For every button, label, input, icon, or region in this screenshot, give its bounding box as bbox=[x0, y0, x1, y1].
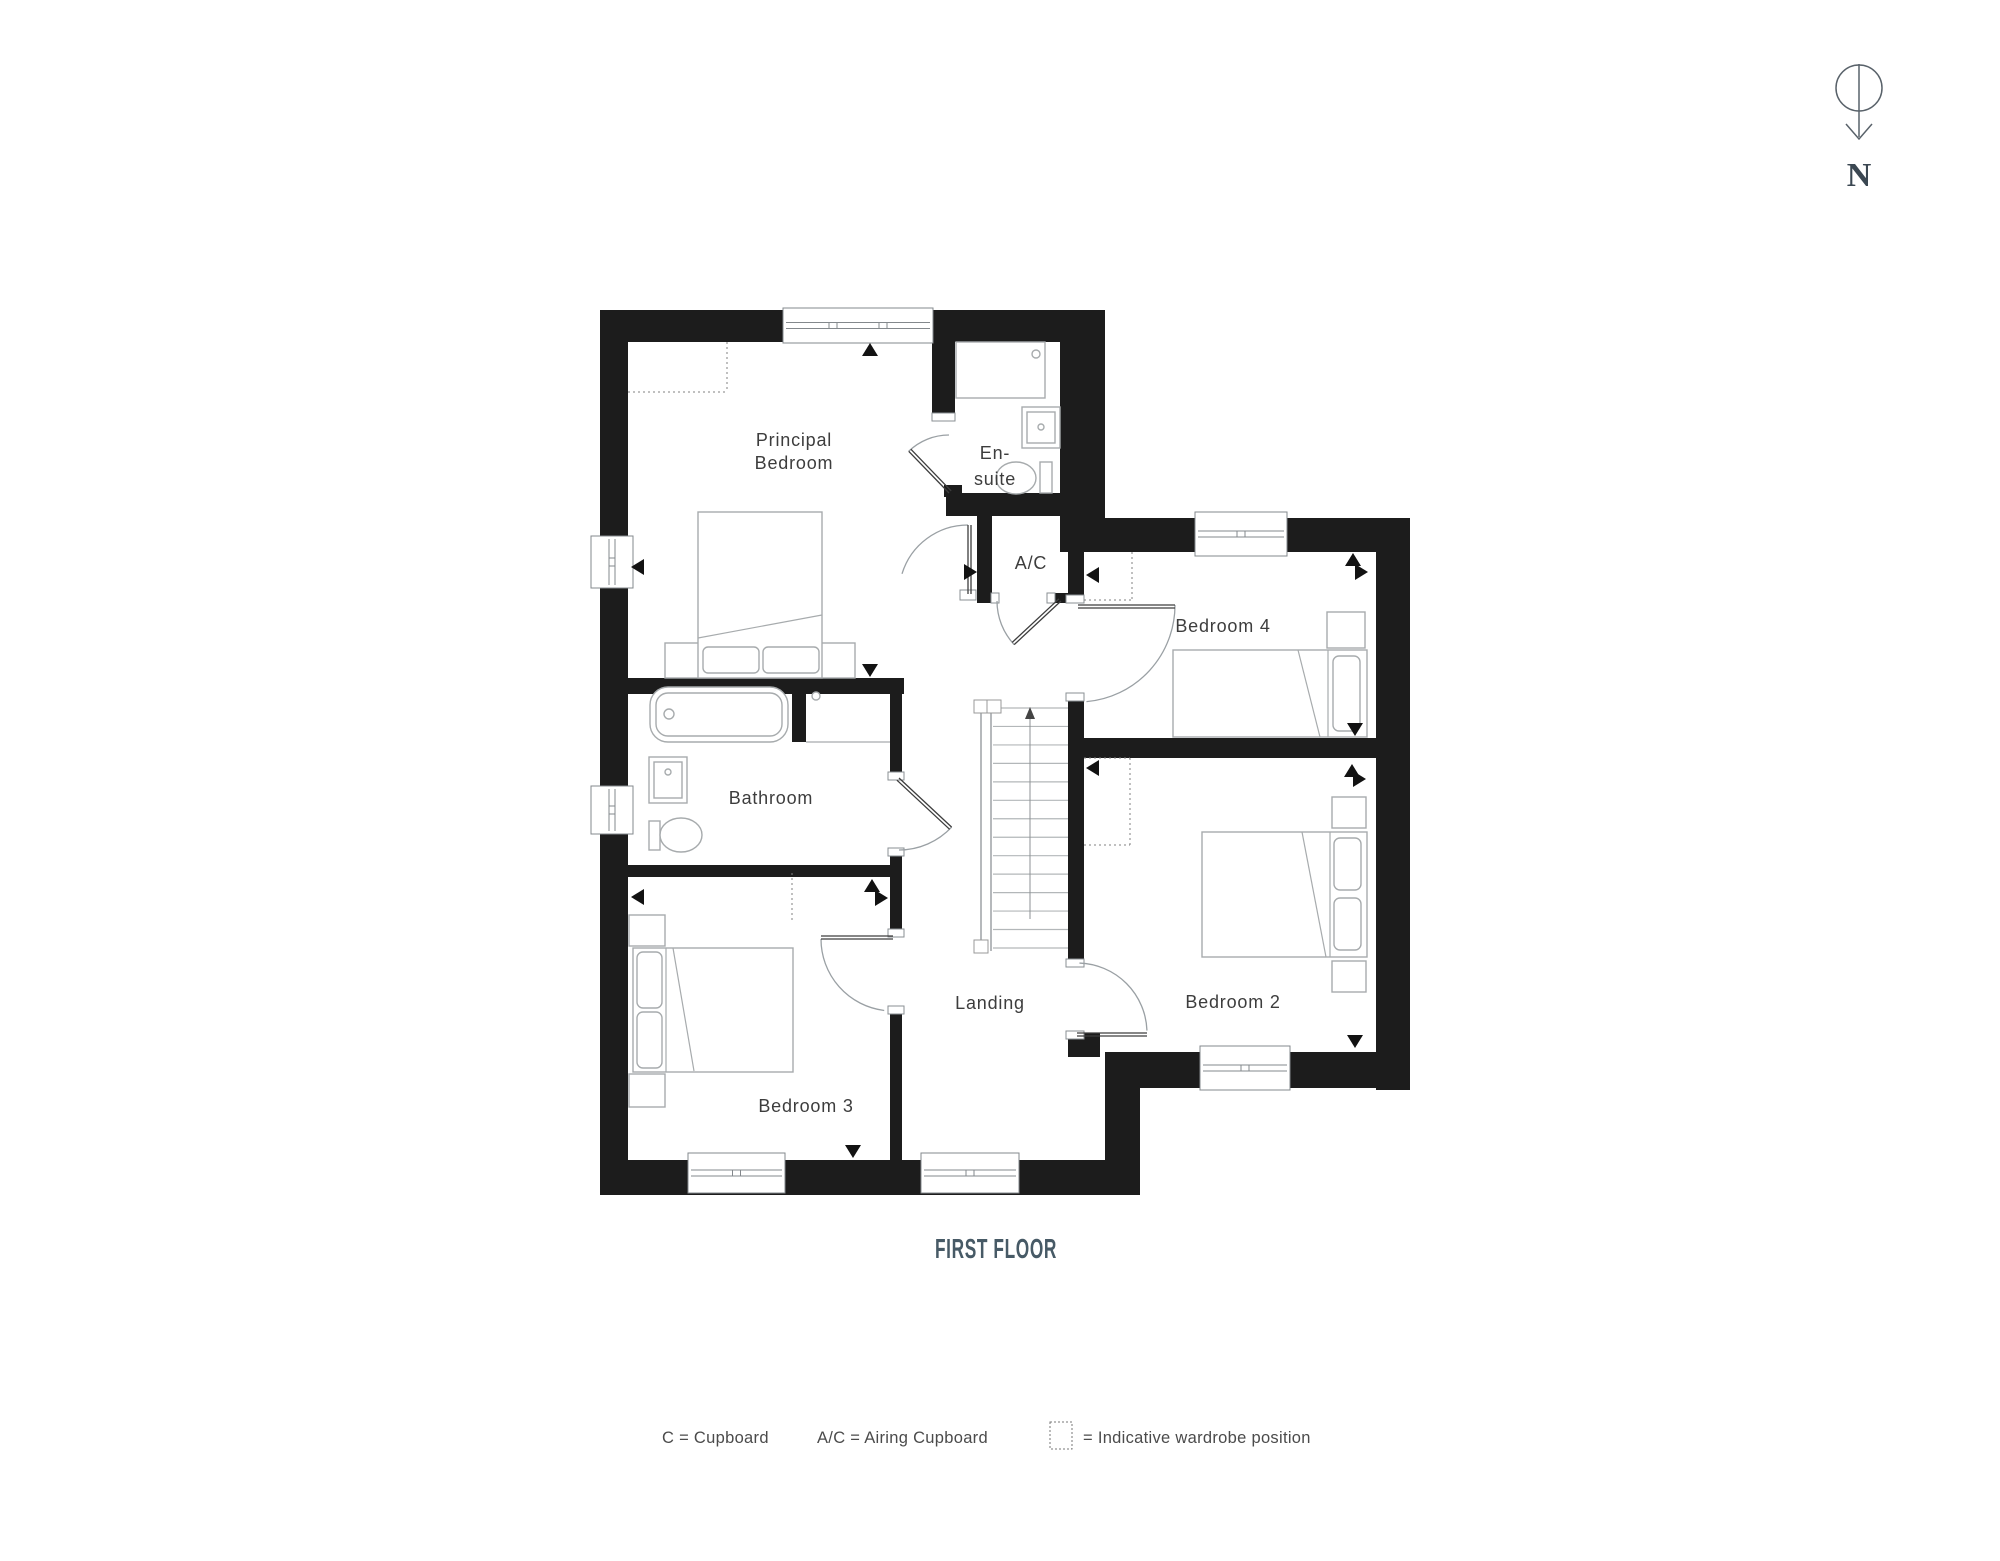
pillow bbox=[1333, 656, 1360, 731]
wall-segment bbox=[600, 1160, 1140, 1195]
door-jamb bbox=[1047, 593, 1055, 603]
bedside-table bbox=[1332, 961, 1366, 992]
bath-tap bbox=[664, 709, 674, 719]
wall-segment bbox=[932, 340, 955, 421]
wall-segment bbox=[792, 680, 806, 742]
newel-post bbox=[974, 700, 988, 713]
door-jamb bbox=[1066, 1031, 1084, 1039]
bedside-table bbox=[1332, 797, 1366, 828]
window bbox=[591, 786, 633, 834]
background bbox=[0, 0, 2000, 1561]
wall-segment bbox=[1376, 518, 1410, 1090]
landing-label: Landing bbox=[955, 993, 1025, 1013]
legend-cupboard: C = Cupboard bbox=[662, 1429, 769, 1447]
window-frame bbox=[1200, 1046, 1290, 1090]
legend-wardrobe-swatch bbox=[1050, 1422, 1072, 1449]
shower bbox=[956, 342, 1045, 398]
wall-segment bbox=[600, 310, 628, 1195]
bedroom4-label: Bedroom 4 bbox=[1175, 616, 1270, 636]
window bbox=[783, 308, 933, 343]
floorplan-canvas: Principal Bedroom En- suite A/C Bedroom … bbox=[0, 0, 2000, 1561]
wall-segment bbox=[946, 493, 1062, 516]
door-jamb bbox=[888, 848, 904, 856]
door-jamb bbox=[1066, 595, 1084, 603]
toilet-cistern bbox=[649, 821, 660, 850]
fixture-dot bbox=[812, 692, 820, 700]
bathroom-label: Bathroom bbox=[729, 788, 813, 808]
pillow bbox=[763, 647, 819, 673]
window-frame bbox=[921, 1153, 1019, 1193]
toilet-cistern bbox=[1040, 462, 1052, 493]
ensuite-label-line2: suite bbox=[974, 469, 1016, 489]
wall-segment bbox=[1068, 695, 1084, 967]
bedside-table bbox=[629, 1074, 665, 1107]
compass-n-label: N bbox=[1847, 157, 1872, 194]
wall-segment bbox=[977, 516, 992, 603]
door-jamb bbox=[1066, 693, 1084, 701]
floor-title: FIRST FLOOR bbox=[935, 1233, 1057, 1264]
window-frame bbox=[591, 536, 633, 588]
legend-wardrobe: = Indicative wardrobe position bbox=[1083, 1429, 1311, 1447]
wall-segment bbox=[1060, 310, 1105, 552]
window-frame bbox=[591, 786, 633, 834]
window-frame bbox=[783, 308, 933, 343]
door-jamb bbox=[888, 772, 904, 780]
window bbox=[688, 1153, 785, 1193]
wall-segment bbox=[890, 850, 902, 937]
bedroom3-label: Bedroom 3 bbox=[758, 1096, 853, 1116]
door-jamb bbox=[991, 593, 999, 603]
wall-segment bbox=[628, 865, 902, 877]
floorplan-page: Principal Bedroom En- suite A/C Bedroom … bbox=[0, 0, 2000, 1561]
principal-bedroom-label-line2: Bedroom bbox=[755, 453, 834, 473]
pillow bbox=[637, 1012, 662, 1068]
wall-segment bbox=[890, 1008, 902, 1160]
bedroom2-label: Bedroom 2 bbox=[1185, 992, 1280, 1012]
basin-tap bbox=[1038, 424, 1044, 430]
ensuite-label-line1: En- bbox=[980, 443, 1010, 463]
airing-cupboard-label: A/C bbox=[1015, 553, 1047, 573]
pillow bbox=[703, 647, 759, 673]
legend-airing-cupboard: A/C = Airing Cupboard bbox=[817, 1429, 988, 1447]
window bbox=[591, 536, 633, 588]
bedside-table bbox=[1327, 612, 1365, 648]
shower-head bbox=[1032, 350, 1040, 358]
pillow bbox=[637, 952, 662, 1008]
wall-segment bbox=[890, 678, 902, 778]
bedside-table bbox=[629, 915, 665, 946]
window bbox=[921, 1153, 1019, 1193]
door-jamb bbox=[888, 1006, 904, 1014]
newel-post bbox=[987, 700, 1001, 713]
window bbox=[1200, 1046, 1290, 1090]
toilet-bowl bbox=[660, 818, 702, 852]
door-jamb bbox=[932, 413, 955, 421]
pillow bbox=[1334, 838, 1361, 890]
newel-post bbox=[974, 940, 988, 953]
title-block: FIRST FLOOR bbox=[935, 1233, 1057, 1264]
basin-tap bbox=[665, 769, 671, 775]
window bbox=[1195, 512, 1287, 556]
basin-inner bbox=[654, 762, 682, 798]
bathtub-inner bbox=[656, 693, 782, 736]
principal-bedroom-label-line1: Principal bbox=[756, 430, 832, 450]
pillow bbox=[1334, 898, 1361, 950]
window-frame bbox=[1195, 512, 1287, 556]
window-frame bbox=[688, 1153, 785, 1193]
wall-segment bbox=[1068, 738, 1410, 758]
